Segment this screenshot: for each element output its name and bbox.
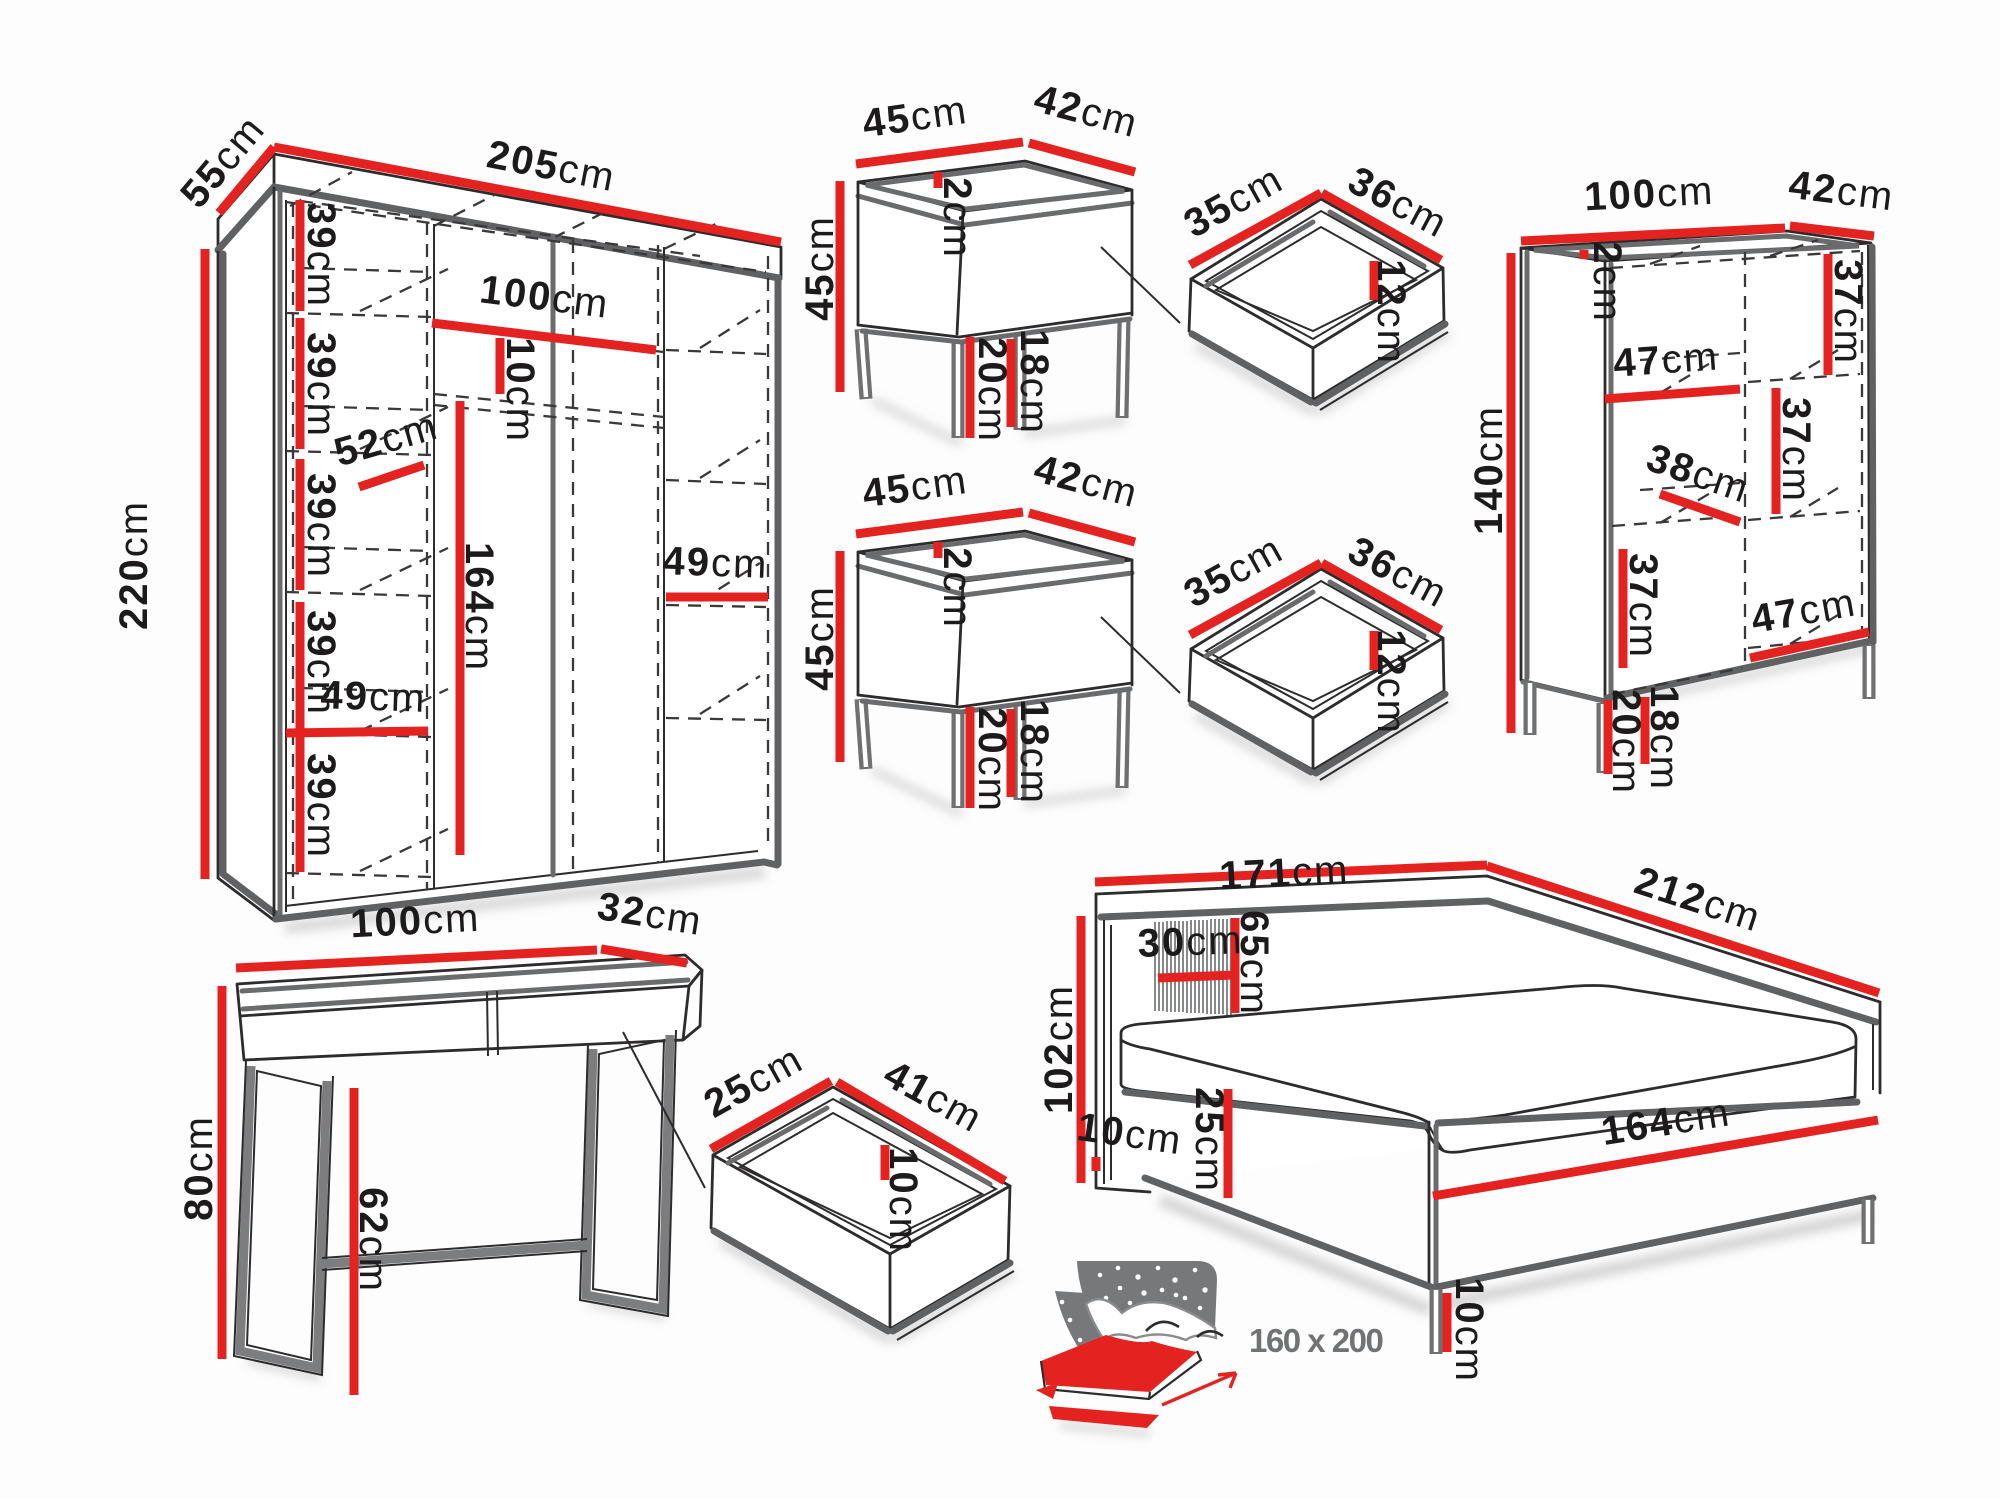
svg-text:37cm: 37cm xyxy=(1621,553,1665,659)
svg-text:100cm: 100cm xyxy=(349,896,481,947)
svg-text:171cm: 171cm xyxy=(1218,848,1350,899)
svg-text:18cm: 18cm xyxy=(1642,685,1686,791)
svg-text:49cm: 49cm xyxy=(320,673,427,721)
svg-text:160 x 200: 160 x 200 xyxy=(1249,1322,1382,1359)
svg-text:10cm: 10cm xyxy=(498,337,542,443)
svg-text:164cm: 164cm xyxy=(457,542,501,672)
svg-text:45cm: 45cm xyxy=(798,215,842,321)
svg-text:39cm: 39cm xyxy=(299,332,343,438)
svg-text:47cm: 47cm xyxy=(1612,334,1721,385)
svg-text:30cm: 30cm xyxy=(1137,918,1244,966)
svg-text:2cm: 2cm xyxy=(1585,241,1629,323)
svg-text:25cm: 25cm xyxy=(1187,1087,1231,1193)
svg-text:10cm: 10cm xyxy=(881,1147,925,1253)
svg-text:102cm: 102cm xyxy=(1037,984,1081,1114)
svg-text:100cm: 100cm xyxy=(1583,169,1715,220)
svg-text:20cm: 20cm xyxy=(1604,689,1648,795)
svg-text:37cm: 37cm xyxy=(1774,397,1818,503)
svg-text:2cm: 2cm xyxy=(935,177,979,259)
svg-text:62cm: 62cm xyxy=(351,1187,395,1293)
svg-text:10cm: 10cm xyxy=(1447,1277,1491,1383)
svg-text:220cm: 220cm xyxy=(112,500,156,630)
svg-text:18cm: 18cm xyxy=(1012,329,1056,435)
svg-text:80cm: 80cm xyxy=(177,1115,221,1221)
svg-text:140cm: 140cm xyxy=(1467,405,1511,535)
svg-text:65cm: 65cm xyxy=(1232,910,1276,1016)
svg-text:39cm: 39cm xyxy=(299,202,343,308)
svg-text:49cm: 49cm xyxy=(662,539,769,587)
svg-text:39cm: 39cm xyxy=(299,753,343,859)
svg-text:39cm: 39cm xyxy=(299,473,343,579)
svg-text:12cm: 12cm xyxy=(1369,259,1413,365)
svg-text:20cm: 20cm xyxy=(970,337,1014,443)
svg-text:37cm: 37cm xyxy=(1826,259,1870,365)
